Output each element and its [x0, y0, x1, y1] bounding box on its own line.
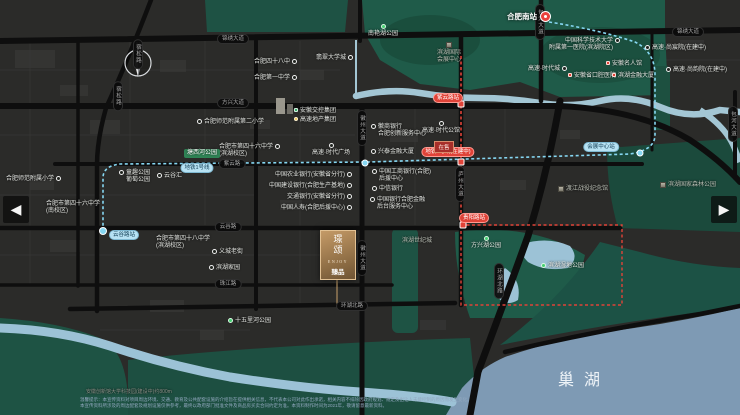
metro-station-label: 地铁1号线: [180, 163, 213, 173]
poi-gaosu-realestate-group: 高速地产集团: [294, 117, 336, 124]
poi-citic-bank: 中信银行: [372, 186, 403, 193]
road-label: 环湖北路: [336, 301, 368, 311]
poi-gaosu-times-mansion: 高速·时代公馆: [422, 121, 460, 135]
road-label: 环湖北路: [494, 263, 504, 299]
lake-label: 巢湖: [558, 366, 610, 390]
next-image-button[interactable]: ▶: [711, 196, 737, 223]
poi-ustc-hospital: 中国科学技术大学附属第一医院(滨湖院区): [549, 38, 620, 52]
poi-nanyanhu-park: 南艳湖公园: [368, 24, 398, 38]
poi-binhu-financial-tower: 滨湖金融大厦: [612, 73, 654, 80]
poi-dot-icon: [562, 66, 567, 71]
poi-dot-icon: [372, 169, 377, 174]
poi-school-48-binhu: 合肥市第四十八中学(滨湖校区): [156, 236, 210, 250]
poi-dot-icon: [157, 173, 162, 178]
poi-mingrenguan: 安徽名人馆: [606, 61, 642, 68]
project-logo: 璟颂 ENJOY 臻品: [320, 230, 356, 280]
road-label: 方兴大道: [217, 98, 249, 108]
poi-school-48: 合肥四十八中: [254, 59, 297, 66]
park-dot-icon: [228, 318, 233, 323]
road-label: 徽州大道: [357, 240, 367, 276]
poi-dot-icon: [371, 124, 376, 129]
park-dot-icon: [380, 24, 385, 29]
poi-chinalife: 中国人寿(合肥后援中心): [281, 205, 352, 212]
poi-dot-icon: [347, 194, 352, 199]
park-dot-icon: [483, 236, 488, 241]
poi-xingtai-tower: 兴泰金融大厦: [371, 149, 414, 156]
sales-status-badge: 在售: [434, 141, 454, 153]
poi-gaosu-shangyunyuan: 高速·尚韵院(在建中): [666, 67, 727, 74]
poi-yicheng-old-street: 义城老街: [212, 249, 243, 256]
poi-fangxinghu-park: 方兴湖公园: [471, 236, 501, 250]
poi-jiaokong-group: 安徽交控集团: [294, 108, 336, 115]
road-label: 宿松路: [113, 81, 123, 111]
poi-dot-icon: [119, 170, 124, 175]
construction-marker-icon: [612, 73, 616, 77]
station-name: 合肥南站: [507, 11, 537, 22]
previous-image-button[interactable]: ◀: [3, 196, 29, 223]
metro-station-label: 紫云路站: [433, 93, 463, 103]
poi-dot-icon: [209, 265, 214, 270]
construction-marker-icon: [568, 73, 572, 77]
poi-normal-school-primary: 合肥师范附属小学: [6, 176, 61, 183]
construction-marker-icon: [606, 61, 610, 65]
poi-university-town: 翡翠大学城: [316, 55, 353, 62]
poi-tech-park-note: 安徽创新馆大学科技园(建设中)约800m: [86, 389, 172, 396]
poi-school-no1: 合肥第一中学: [254, 75, 297, 82]
logo-latin-text: ENJOY: [328, 259, 348, 264]
poi-dot-icon: [347, 172, 352, 177]
poi-shiwulihe-park: 十五里河公园: [228, 318, 271, 325]
poi-gaosu-times-city: 高速·时代城: [528, 66, 567, 73]
logo-project-name: 璟颂: [332, 234, 345, 256]
poi-gaosu-times-plaza: 高速·时代广场: [312, 143, 350, 157]
poi-binhu-jiayuan: 滨湖家园: [209, 265, 240, 272]
poi-dot-icon: [666, 67, 671, 72]
group-dot-icon: [294, 108, 298, 112]
road-label: 珠江路: [215, 279, 242, 289]
label-overlay: 南艳湖公园合肥四十八中合肥第一中学翡翠大学城中国科学技术大学附属第一医院(滨湖院…: [0, 0, 740, 415]
building-icon: [660, 182, 666, 188]
poi-stomatology-hospital: 安徽省口腔医院: [568, 73, 616, 80]
poi-dot-icon: [371, 149, 376, 154]
poi-dot-icon: [439, 121, 444, 126]
poi-dot-icon: [347, 205, 352, 210]
poi-dot-icon: [645, 45, 650, 50]
poi-putao-park: 童趣公园葡萄公园: [119, 170, 150, 184]
road-label: 宿松路: [133, 39, 143, 69]
poi-school-46-south: 合肥市第四十六中学(南校区): [46, 201, 100, 215]
poi-dot-icon: [347, 183, 352, 188]
poi-dujiang-memorial: 渡江战役纪念馆: [558, 186, 608, 193]
poi-abc-bank: 中国农业银行(安徽省分行): [275, 172, 352, 179]
poi-yunguhui: 云谷汇: [157, 173, 182, 180]
road-label: 锦绣大道: [217, 34, 249, 44]
road-label: 包河大道: [728, 106, 738, 142]
metro-station-label: 会展中心站: [583, 142, 619, 152]
poi-dot-icon: [372, 186, 377, 191]
train-station-icon: [540, 11, 551, 22]
disclaimer-text: 温馨提示：本宣传资料对项目周边环境、交通、教育及公共配套设施的介绍旨在提供相关信…: [80, 397, 680, 409]
poi-school-46-binhu: 合肥市第四十六中学(滨湖校区): [219, 144, 280, 158]
road-label: 云谷路: [215, 222, 242, 232]
poi-dot-icon: [292, 75, 297, 80]
hefei-south-station: 合肥南站: [507, 11, 551, 22]
road-label: 锦绣大道: [672, 27, 704, 37]
poi-convention-center: 滨湖国际会展中心: [437, 42, 461, 64]
building-icon: [446, 42, 452, 48]
park-dot-icon: [541, 263, 546, 268]
poi-boc: 中国银行合肥金融后台服务中心: [370, 197, 425, 211]
poi-bocom-bank: 交通银行(安徽省分行): [287, 194, 352, 201]
road-label: 庐州大道: [455, 166, 465, 202]
poi-wetland-park: 滨湖湿地公园: [541, 263, 584, 270]
poi-binhu-century-city: 滨湖世纪城: [402, 238, 432, 245]
poi-tangxihe-park: 塘西河公园: [184, 149, 220, 158]
poi-dot-icon: [275, 144, 280, 149]
poi-dot-icon: [56, 176, 61, 181]
poi-icbc: 中国工商银行(合肥)后援中心: [372, 169, 431, 183]
poi-dot-icon: [212, 249, 217, 254]
building-icon: [558, 186, 564, 192]
poi-gaosu-shangchenyuan: 高速·尚宸院(在建中): [645, 45, 706, 52]
metro-station-label: 云谷路站: [109, 230, 139, 240]
metro-station-label: 贵阳路站: [459, 213, 489, 223]
poi-huishang-bank: 徽商银行合肥创新服务中心: [371, 124, 426, 138]
road-label: 紫云路: [219, 159, 246, 169]
poi-dot-icon: [329, 143, 334, 148]
poi-dot-icon: [615, 38, 620, 43]
poi-forest-park: 滨湖国家森林公园: [660, 182, 716, 189]
location-map: N 南艳湖公园合肥四十八中合肥第一中学翡翠大学城中国科学技术大学附属第一医院(滨…: [0, 0, 740, 415]
poi-dot-icon: [292, 59, 297, 64]
road-label: 徽州大道: [357, 110, 367, 146]
poi-normal-school-2nd-primary: 合肥师范附属第二小学: [197, 119, 264, 126]
poi-dot-icon: [370, 197, 375, 202]
poi-dot-icon: [197, 119, 202, 124]
company-dot-icon: [294, 117, 298, 121]
poi-ccb-bank: 中国建设银行(合肥生产基地): [269, 183, 352, 190]
poi-dot-icon: [348, 55, 353, 60]
road-label: 包河大道: [535, 4, 545, 40]
logo-subtitle: 臻品: [332, 266, 345, 276]
